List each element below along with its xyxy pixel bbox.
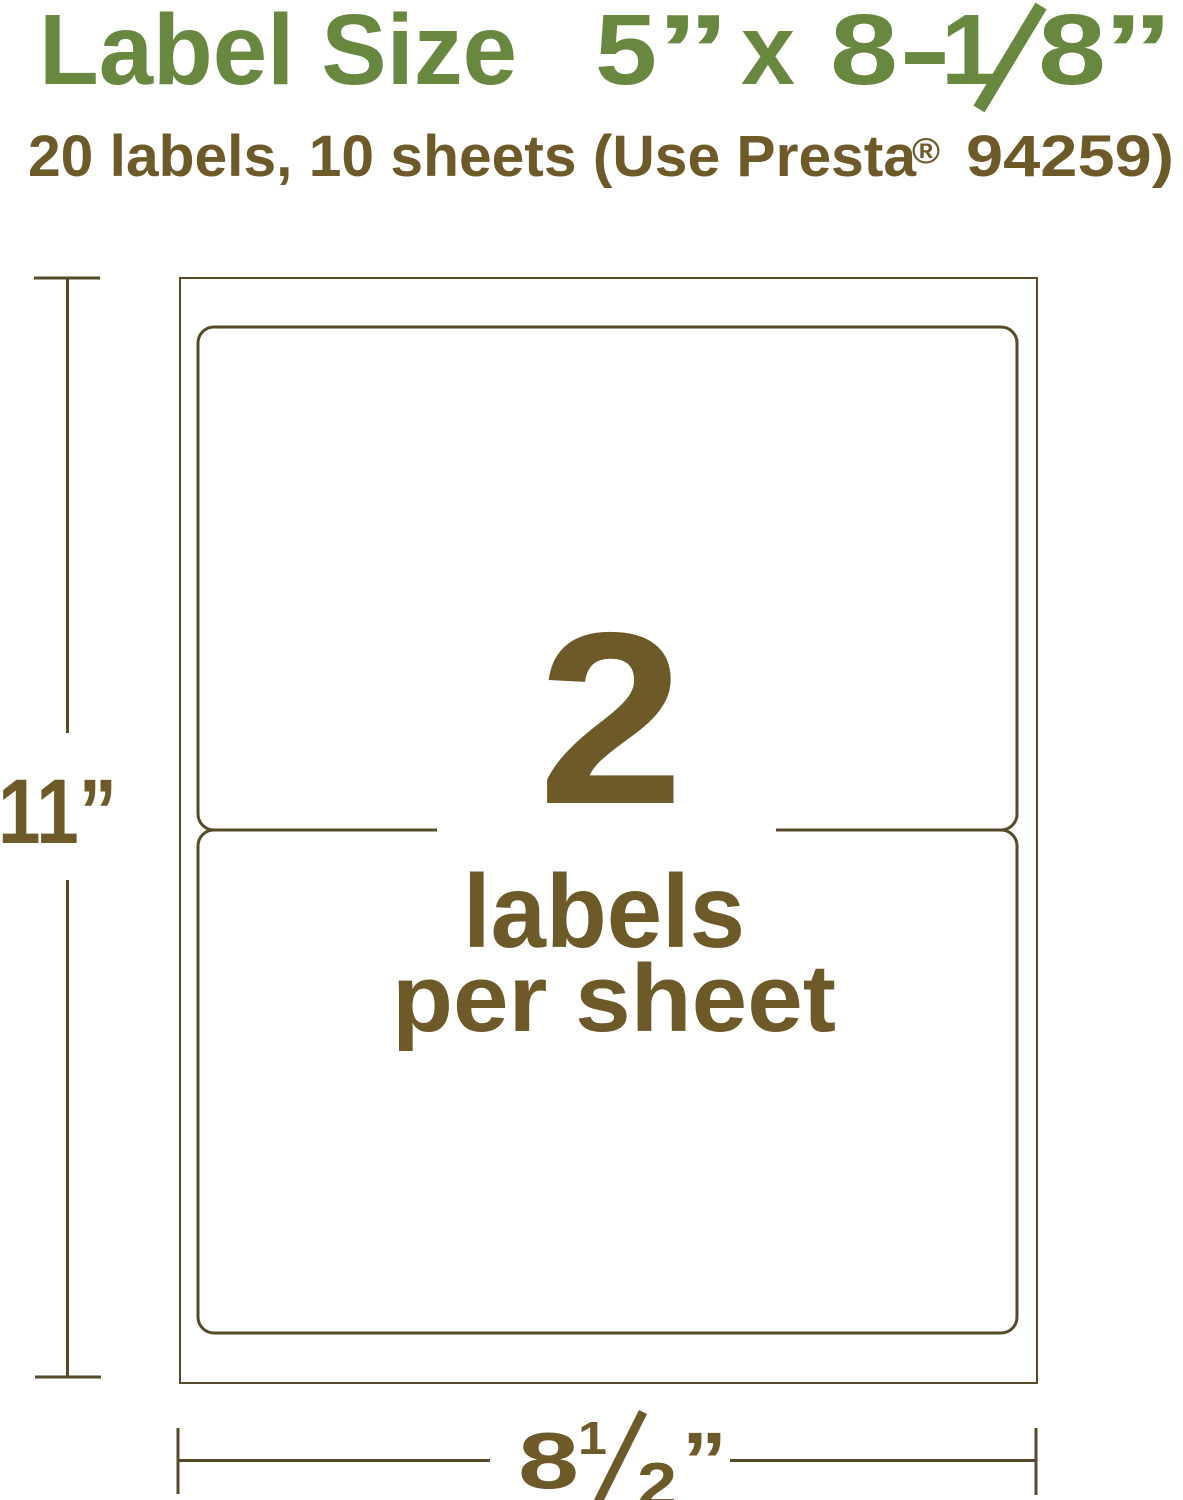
svg-text:11”: 11” <box>0 761 117 863</box>
svg-text:x: x <box>741 0 795 106</box>
svg-text:”: ” <box>682 1416 727 1500</box>
svg-text:20 labels, 10 sheets (Use Pres: 20 labels, 10 sheets (Use Presta <box>28 124 917 189</box>
svg-text:8: 8 <box>518 1416 579 1500</box>
svg-text:”: ” <box>1103 0 1173 106</box>
svg-text:Label Size: Label Size <box>39 0 517 106</box>
svg-text:1: 1 <box>578 1412 607 1464</box>
svg-text:8: 8 <box>830 0 898 106</box>
svg-text:2: 2 <box>538 581 684 855</box>
svg-text:®: ® <box>912 130 940 171</box>
svg-text:per sheet: per sheet <box>392 945 836 1052</box>
svg-text:”: ” <box>656 0 730 106</box>
svg-text:5: 5 <box>595 0 657 106</box>
svg-text:2: 2 <box>637 1451 677 1500</box>
svg-text:8: 8 <box>1038 0 1106 106</box>
svg-text:94259): 94259) <box>966 124 1174 189</box>
